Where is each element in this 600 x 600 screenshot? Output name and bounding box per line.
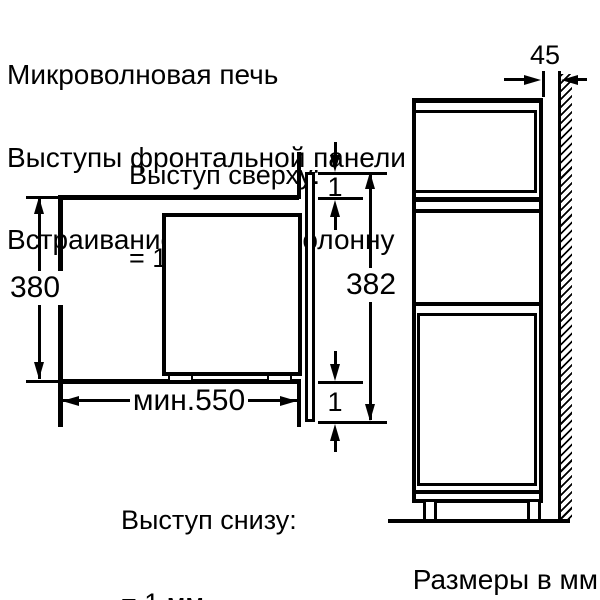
note-bottom-line-1: Выступ снизу: (121, 507, 297, 535)
installation-diagram: Микроволновая печь Выступы фронтальной п… (0, 0, 600, 600)
lower-shelf-line (412, 302, 543, 306)
dim-550-arrow-left-icon (62, 396, 79, 406)
dim-45-right-line (576, 78, 587, 81)
floor-line (388, 519, 570, 524)
microwave-body (162, 213, 302, 376)
microwave-foot-right (267, 374, 292, 382)
cabinet-leg-left (423, 502, 437, 519)
upper-shelf-line-1 (412, 197, 543, 202)
cabinet-bottom-line-1 (412, 490, 543, 494)
dim-382-label: 382 (342, 268, 400, 302)
dim-45-extension-line (542, 71, 545, 97)
note-bottom-line-2: = 1 мм (121, 590, 297, 600)
lower-compartment-box (417, 313, 537, 486)
dim-380-arrow-down-icon (34, 362, 44, 379)
title-line-1: Микроволновая печь (7, 61, 406, 89)
dim-45-left-line (504, 78, 526, 81)
dim-45-arrow-right-icon (524, 75, 541, 85)
niche-front-left-line (58, 195, 63, 427)
dim-550-label: мин.550 (130, 386, 248, 416)
top-gap-lower-arrow-line (334, 215, 337, 230)
cabinet-front-upper-line (297, 152, 301, 199)
note-top-line-1: Выступ сверху: (129, 162, 320, 190)
dim-550-arrow-right-icon (280, 396, 297, 406)
ext-line-niche-bottom (318, 381, 363, 384)
wall-hatching (561, 74, 572, 519)
microwave-foot-left (168, 374, 193, 382)
dim-382-arrow-down-icon (365, 404, 375, 421)
cabinet-leg-right (527, 502, 541, 519)
microwave-front-panel (305, 172, 315, 422)
dim-380-label: 380 (6, 271, 64, 305)
upper-shelf-line-2 (412, 209, 543, 213)
ext-line-panel-bottom (318, 421, 387, 424)
bottom-gap-lower-arrow-line (334, 439, 337, 452)
cabinet-right-side-line (539, 98, 543, 502)
top-gap-arrow-down-icon (330, 155, 340, 172)
bottom-gap-label: 1 (324, 387, 346, 417)
niche-top-line (58, 195, 299, 200)
niche-bottom-extension-line (26, 380, 60, 383)
dim-380-arrow-up-icon (34, 197, 44, 214)
cabinet-top-line (412, 98, 543, 103)
upper-compartment-box (416, 110, 537, 193)
dim-45-label: 45 (518, 40, 572, 70)
note-bottom-protrusion: Выступ снизу: = 1 мм (121, 452, 297, 600)
dim-382-arrow-up-icon (365, 172, 375, 189)
cabinet-front-lower-line (297, 379, 301, 427)
top-gap-label: 1 (324, 172, 346, 202)
units-note: Размеры в мм (380, 564, 598, 596)
bottom-gap-arrow-down-icon (330, 364, 340, 381)
